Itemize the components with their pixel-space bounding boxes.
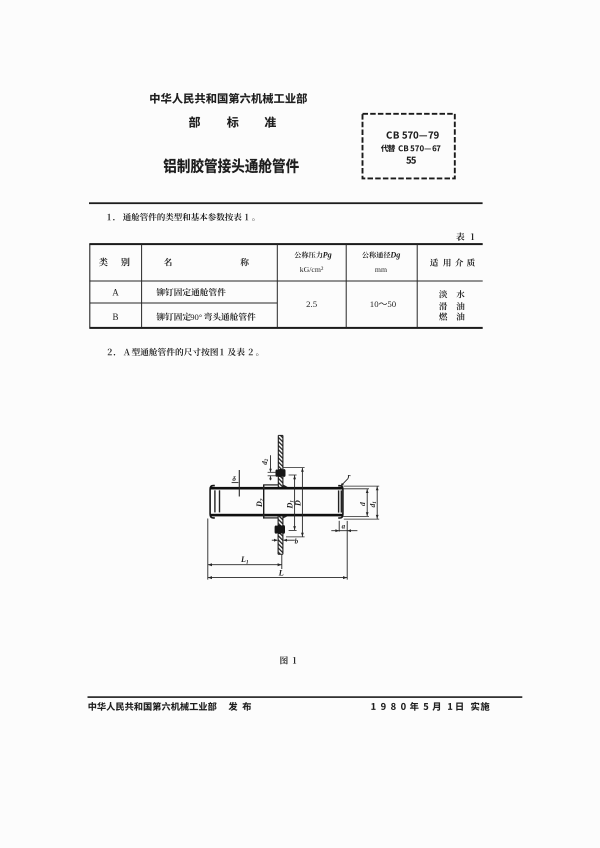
svg-text:b: b	[295, 537, 299, 545]
svg-text:2.5: 2.5	[306, 299, 318, 309]
svg-text:10～50: 10～50	[370, 299, 397, 309]
svg-text:r: r	[348, 472, 351, 481]
svg-text:mm: mm	[375, 265, 387, 274]
svg-text:δ: δ	[232, 475, 236, 483]
svg-text:D2: D2	[255, 498, 265, 508]
svg-text:A: A	[112, 287, 119, 297]
svg-text:d2: d2	[261, 458, 270, 465]
svg-text:L: L	[278, 567, 284, 577]
svg-text:Dg: Dg	[389, 251, 400, 260]
svg-text:90°: 90°	[190, 312, 203, 322]
svg-text:a: a	[342, 523, 346, 531]
svg-text:B: B	[112, 312, 118, 322]
svg-text:D: D	[294, 500, 303, 507]
svg-text:d: d	[358, 502, 367, 506]
svg-text:kG/cm²: kG/cm²	[300, 265, 324, 274]
svg-text:d1: d1	[368, 501, 378, 507]
svg-text:L1: L1	[240, 555, 249, 565]
svg-text:Pg: Pg	[323, 251, 332, 260]
